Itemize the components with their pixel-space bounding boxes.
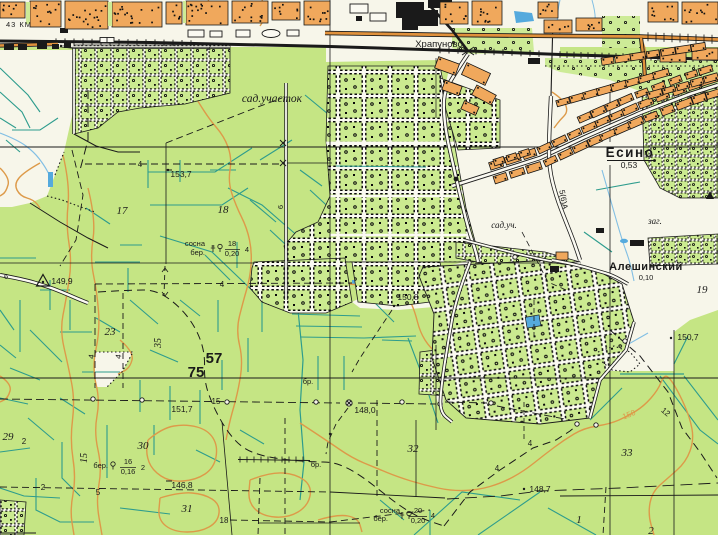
svg-text:19: 19 [697, 284, 709, 296]
svg-text:2: 2 [22, 437, 27, 446]
svg-text:150,8: 150,8 [397, 292, 419, 302]
svg-text:Есино: Есино [606, 145, 655, 160]
svg-text:бер.: бер. [190, 248, 205, 257]
svg-text:4: 4 [528, 439, 533, 448]
svg-text:4: 4 [220, 280, 225, 289]
svg-text:5: 5 [96, 488, 101, 497]
svg-text:4: 4 [431, 511, 435, 520]
svg-text:0,53: 0,53 [621, 160, 638, 170]
svg-text:4: 4 [138, 160, 143, 169]
svg-text:6: 6 [276, 205, 285, 209]
svg-text:151,7: 151,7 [171, 404, 193, 414]
svg-text:2: 2 [207, 42, 212, 52]
svg-text:30: 30 [137, 440, 150, 452]
svg-text:бер.: бер. [93, 461, 108, 470]
svg-text:0,20: 0,20 [225, 249, 240, 258]
svg-text:сад.участок: сад.участок [242, 93, 303, 105]
svg-text:146,8: 146,8 [171, 480, 193, 490]
svg-text:148,7: 148,7 [529, 484, 551, 494]
svg-text:18: 18 [228, 239, 236, 248]
svg-text:заг.: заг. [647, 216, 662, 226]
svg-text:2: 2 [41, 483, 46, 492]
svg-text:148,0: 148,0 [354, 405, 376, 415]
svg-text:Храпуново: Храпуново [415, 39, 463, 50]
svg-text:33: 33 [621, 447, 634, 459]
svg-text:23: 23 [105, 326, 117, 338]
svg-text:57: 57 [206, 350, 223, 367]
svg-text:4: 4 [245, 245, 249, 254]
svg-text:32: 32 [407, 443, 420, 455]
svg-text:29: 29 [3, 431, 15, 443]
svg-text:31: 31 [181, 503, 193, 515]
svg-text:2: 2 [141, 463, 145, 472]
svg-text:бр.: бр. [311, 460, 322, 469]
svg-text:18: 18 [218, 204, 230, 216]
svg-text:сад.уч.: сад.уч. [491, 220, 517, 230]
svg-text:17: 17 [117, 205, 129, 217]
svg-text:Алешинский: Алешинский [609, 261, 683, 273]
svg-text:6: 6 [4, 272, 8, 281]
svg-text:0,16: 0,16 [121, 467, 136, 476]
svg-text:153,7: 153,7 [170, 169, 192, 179]
svg-text:0,10: 0,10 [639, 273, 654, 282]
svg-text:149,9: 149,9 [51, 276, 73, 286]
svg-text:20: 20 [414, 506, 422, 515]
svg-text:35: 35 [153, 338, 164, 349]
svg-text:16: 16 [124, 457, 132, 466]
svg-text:0,20: 0,20 [411, 516, 426, 525]
svg-text:бер.: бер. [373, 514, 388, 523]
svg-text:75: 75 [188, 364, 205, 381]
svg-text:18: 18 [220, 516, 229, 525]
svg-text:2: 2 [648, 525, 654, 535]
svg-text:150,7: 150,7 [677, 332, 699, 342]
svg-text:бр.: бр. [303, 377, 314, 386]
svg-text:сосна: сосна [185, 239, 206, 248]
svg-text:15: 15 [79, 453, 90, 463]
svg-text:15: 15 [212, 397, 221, 406]
svg-text:4: 4 [495, 464, 500, 473]
svg-text:1: 1 [576, 514, 582, 526]
svg-text:43 КМ: 43 КМ [6, 20, 32, 29]
